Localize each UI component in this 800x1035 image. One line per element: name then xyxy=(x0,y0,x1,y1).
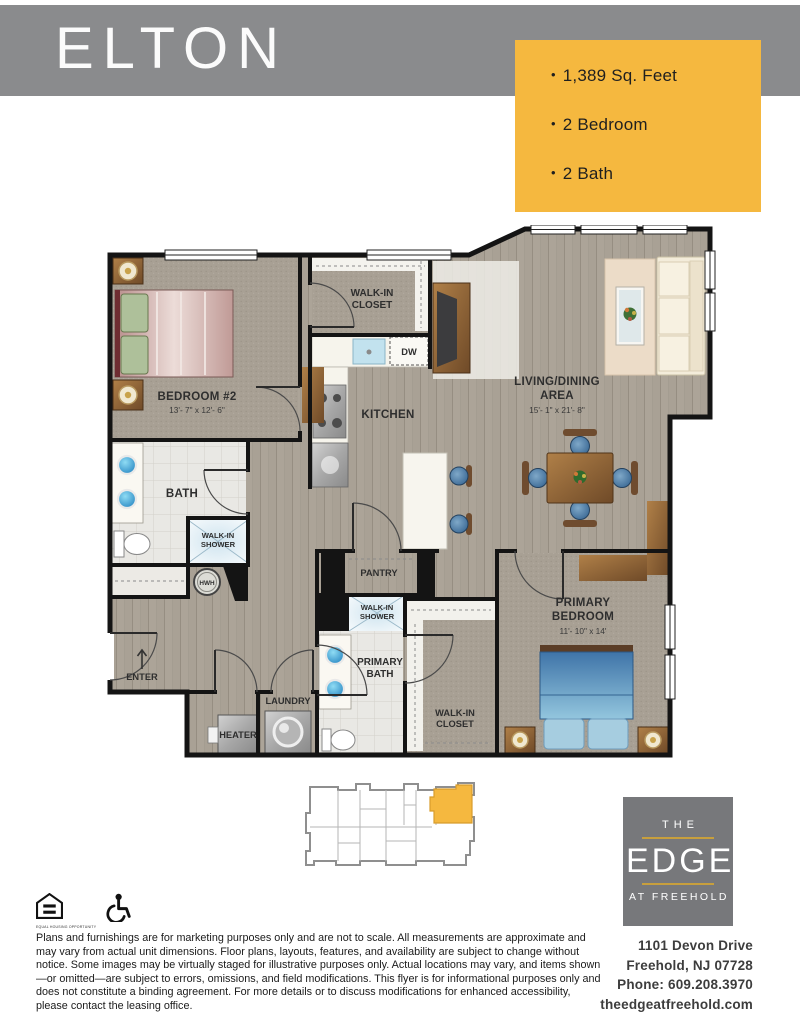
label-bedroom2: BEDROOM #2 xyxy=(157,391,236,403)
footer-icons: EQUAL HOUSING OPPORTUNITY xyxy=(36,893,131,929)
address-line1: 1101 Devon Drive xyxy=(600,936,753,956)
bar-stool xyxy=(450,467,468,485)
tv xyxy=(437,291,457,367)
bullet-icon: • xyxy=(551,165,556,180)
sink xyxy=(118,456,136,474)
svg-text:WALK-IN: WALK-IN xyxy=(351,288,394,299)
svg-text:11'- 10" x 14': 11'- 10" x 14' xyxy=(559,626,606,636)
kitchen-island xyxy=(403,453,447,549)
sink xyxy=(118,490,136,508)
brand-logo: THE EDGE AT FREEHOLD xyxy=(623,797,733,926)
svg-text:WALK-IN: WALK-IN xyxy=(202,531,234,540)
logo-at-freehold: AT FREEHOLD xyxy=(625,891,733,903)
contact-block: 1101 Devon Drive Freehold, NJ 07728 Phon… xyxy=(600,936,753,1014)
wheelchair-accessible-icon xyxy=(104,893,131,927)
label-kitchen: KITCHEN xyxy=(361,409,414,421)
label-primary-bedroom: PRIMARY xyxy=(556,597,611,609)
svg-text:WALK-IN: WALK-IN xyxy=(361,603,393,612)
site-plan xyxy=(298,781,482,876)
label-enter: ENTER xyxy=(126,672,158,682)
label-heater: HEATER xyxy=(219,730,257,740)
bullet-icon: • xyxy=(551,67,556,82)
spec-baths: •2 Bath xyxy=(551,164,761,184)
toilet xyxy=(114,531,124,557)
logo-edge: EDGE xyxy=(626,843,733,879)
floor-plan-svg: BEDROOM #2 13'- 7" x 12'- 6" BATH WALK-I… xyxy=(85,225,775,785)
label-primary-bath: PRIMARY xyxy=(357,657,403,668)
disclaimer-text: Plans and furnishings are for marketing … xyxy=(36,932,602,1014)
sofa xyxy=(657,257,705,375)
toilet xyxy=(322,729,331,751)
logo-rule-top xyxy=(642,837,714,839)
label-laundry: LAUNDRY xyxy=(265,696,311,706)
label-bath: BATH xyxy=(166,488,198,500)
spec-box: •1,389 Sq. Feet •2 Bedroom •2 Bath xyxy=(515,40,761,212)
spec-sqft: •1,389 Sq. Feet xyxy=(551,66,761,86)
svg-text:SHOWER: SHOWER xyxy=(201,540,236,549)
svg-text:AREA: AREA xyxy=(540,390,574,402)
svg-text:BEDROOM: BEDROOM xyxy=(552,611,614,623)
label-pantry: PANTRY xyxy=(360,568,398,578)
label-living: LIVING/DINING xyxy=(514,376,600,388)
logo-the: THE xyxy=(628,819,733,831)
svg-text:SHOWER: SHOWER xyxy=(360,612,395,621)
bar-stool xyxy=(450,515,468,533)
svg-text:WALK-IN: WALK-IN xyxy=(435,708,475,718)
hall-cabinet xyxy=(302,367,324,423)
svg-text:15'- 1" x 21'- 8": 15'- 1" x 21'- 8" xyxy=(529,405,585,415)
label-bedroom2-dims: 13'- 7" x 12'- 6" xyxy=(169,405,225,415)
svg-text:CLOSET: CLOSET xyxy=(352,300,393,311)
dresser xyxy=(579,555,647,581)
label-dw: DW xyxy=(401,347,417,357)
website-link[interactable]: theedgeatfreehold.com xyxy=(600,995,753,1015)
floor-plan: BEDROOM #2 13'- 7" x 12'- 6" BATH WALK-I… xyxy=(85,225,775,790)
plan-title: ELTON xyxy=(55,14,288,84)
address-line2: Freehold, NJ 07728 xyxy=(600,956,753,976)
svg-text:CLOSET: CLOSET xyxy=(436,719,474,729)
highlighted-unit xyxy=(430,785,472,823)
svg-text:BATH: BATH xyxy=(366,669,393,680)
bullet-icon: • xyxy=(551,116,556,131)
sideboard xyxy=(647,501,669,575)
phone: Phone: 609.208.3970 xyxy=(600,975,753,995)
label-hwh: HWH xyxy=(199,580,215,587)
spec-bedrooms: •2 Bedroom xyxy=(551,115,761,135)
equal-housing-icon: EQUAL HOUSING OPPORTUNITY xyxy=(36,893,96,929)
flyer-page: ELTON •1,389 Sq. Feet •2 Bedroom •2 Bath xyxy=(0,0,800,1035)
logo-rule-bottom xyxy=(642,883,714,885)
site-plan-svg xyxy=(298,781,482,871)
